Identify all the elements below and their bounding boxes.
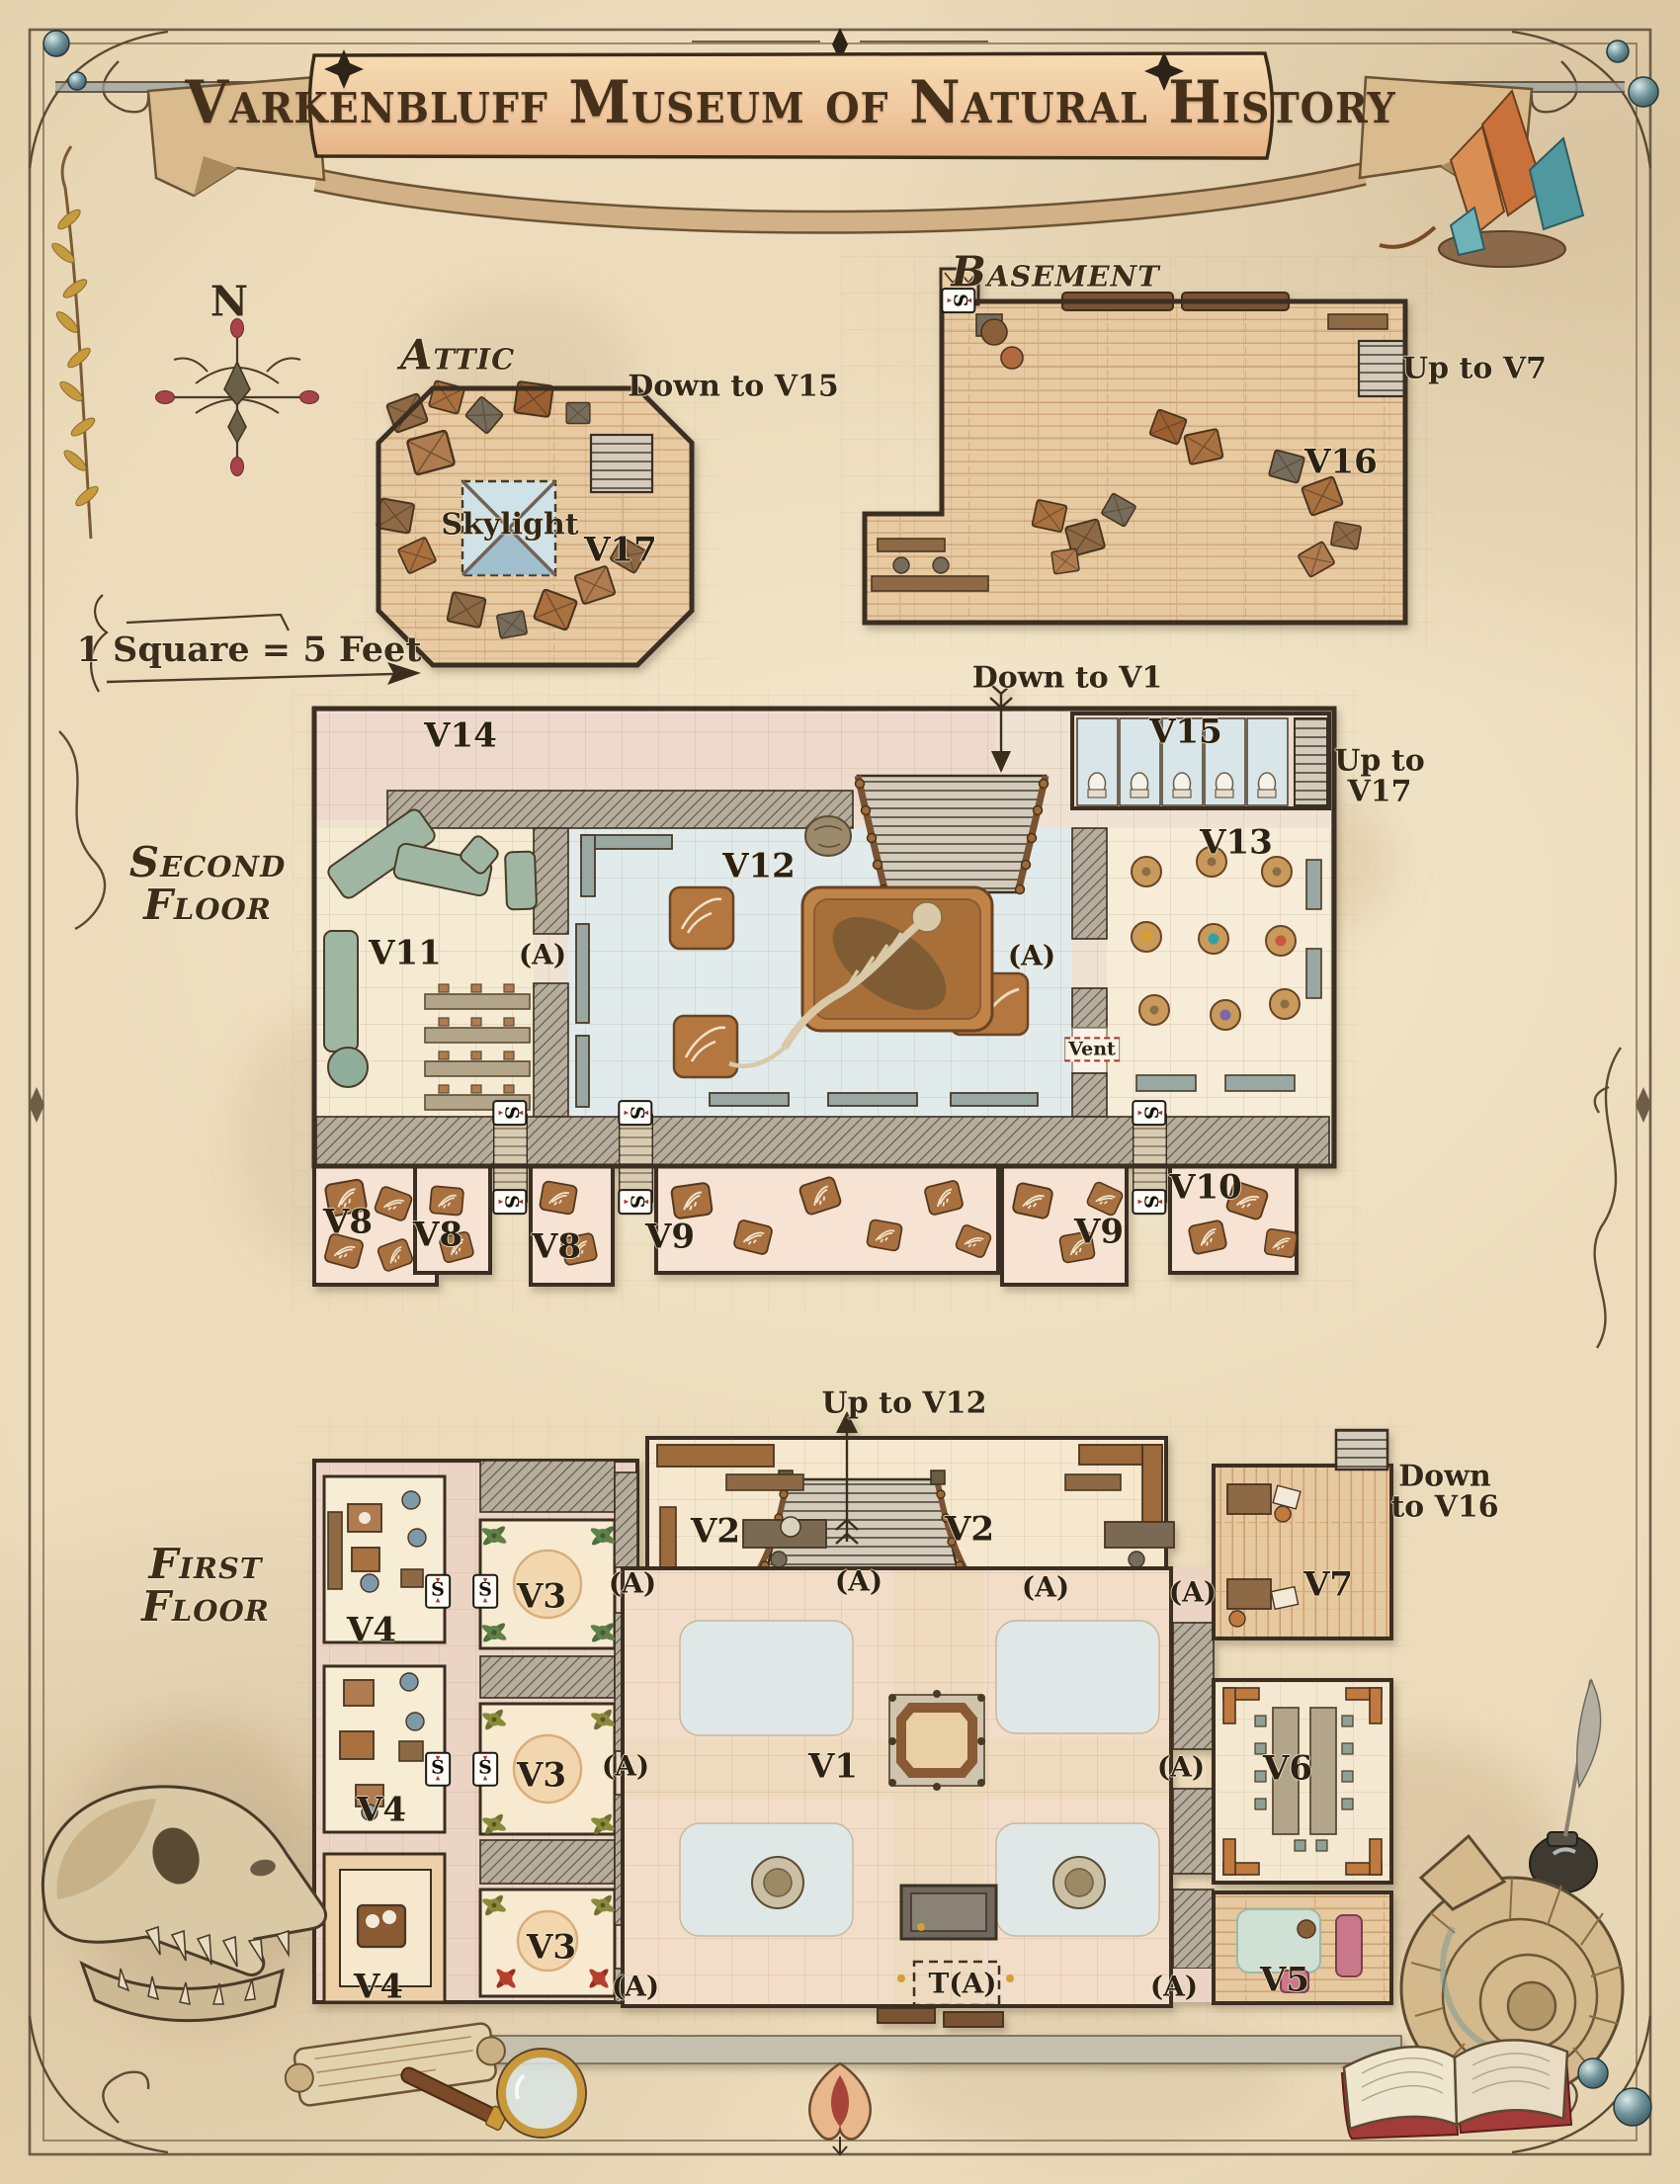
attic-stairs bbox=[591, 435, 652, 492]
dinosaur-skull-illustration bbox=[42, 1787, 325, 2021]
stairs-down-to-v16 bbox=[1336, 1430, 1387, 1470]
attic-skylight bbox=[462, 481, 555, 575]
floor-plan-first bbox=[294, 1411, 1411, 2063]
stairs-up-to-v17 bbox=[1295, 718, 1327, 805]
book-quill-illustration bbox=[1342, 2040, 1571, 2139]
leaf-branch-ornament bbox=[49, 146, 101, 539]
map-page: Varkenbluff Museum of Natural History At… bbox=[0, 0, 1680, 2184]
floor-plan-basement bbox=[840, 253, 1433, 648]
grand-stair-second bbox=[856, 776, 1049, 894]
compass-rose bbox=[156, 319, 319, 476]
entrance-case bbox=[901, 1886, 996, 1939]
room-v6 bbox=[1214, 1680, 1391, 1883]
restrooms-v15 bbox=[1072, 714, 1329, 808]
ammonite-illustration bbox=[1401, 1680, 1623, 2099]
basement-stairs bbox=[1359, 341, 1404, 396]
floor-plan-attic bbox=[354, 368, 719, 690]
floor-plan-second bbox=[292, 684, 1359, 1312]
vent-shaft bbox=[1072, 1028, 1107, 1073]
map-title: Varkenbluff Museum of Natural History bbox=[185, 68, 1395, 137]
map-art bbox=[0, 0, 1680, 2184]
room-v5 bbox=[1214, 1892, 1391, 2003]
v1-central-display bbox=[888, 1690, 985, 1791]
